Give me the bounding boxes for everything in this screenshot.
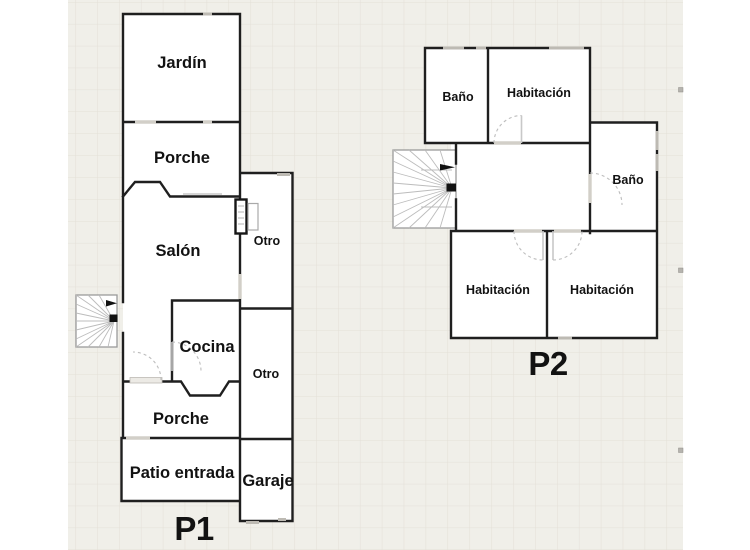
staircase-symbol-p1: [76, 295, 118, 347]
room-label-otro-bottom: Otro: [253, 367, 280, 381]
stair-post: [447, 184, 457, 192]
room-label-salon: Salón: [156, 242, 201, 260]
plan-title-p2: P2: [528, 345, 568, 382]
room-label-habitacion-right: Habitación: [570, 283, 634, 297]
room-label-patio-entrada: Patio entrada: [130, 464, 235, 482]
room-label-porche-bottom: Porche: [153, 410, 209, 428]
floorplan-canvas: Jardín Porche Salón Otro Cocina Otro Por…: [0, 0, 750, 550]
room-label-bano-top: Baño: [442, 90, 474, 104]
selection-handle[interactable]: [679, 88, 684, 93]
selection-handle[interactable]: [679, 268, 684, 273]
plan-title-p1: P1: [174, 510, 214, 547]
floorplan-drawing: Jardín Porche Salón Otro Cocina Otro Por…: [0, 0, 750, 550]
room-label-habitacion-top: Habitación: [507, 86, 571, 100]
room-hall[interactable]: [451, 143, 590, 231]
staircase-symbol-p2: [393, 150, 456, 228]
room-label-jardin: Jardín: [157, 54, 207, 72]
room-label-porche-top: Porche: [154, 149, 210, 167]
door-sill: [130, 378, 162, 384]
room-label-cocina: Cocina: [179, 338, 235, 356]
stair-post: [110, 315, 118, 323]
room-label-habitacion-left: Habitación: [466, 283, 530, 297]
selection-handle[interactable]: [679, 448, 684, 453]
room-label-bano-right: Baño: [612, 173, 644, 187]
room-label-garaje: Garaje: [242, 472, 293, 490]
room-label-otro-top: Otro: [254, 234, 281, 248]
